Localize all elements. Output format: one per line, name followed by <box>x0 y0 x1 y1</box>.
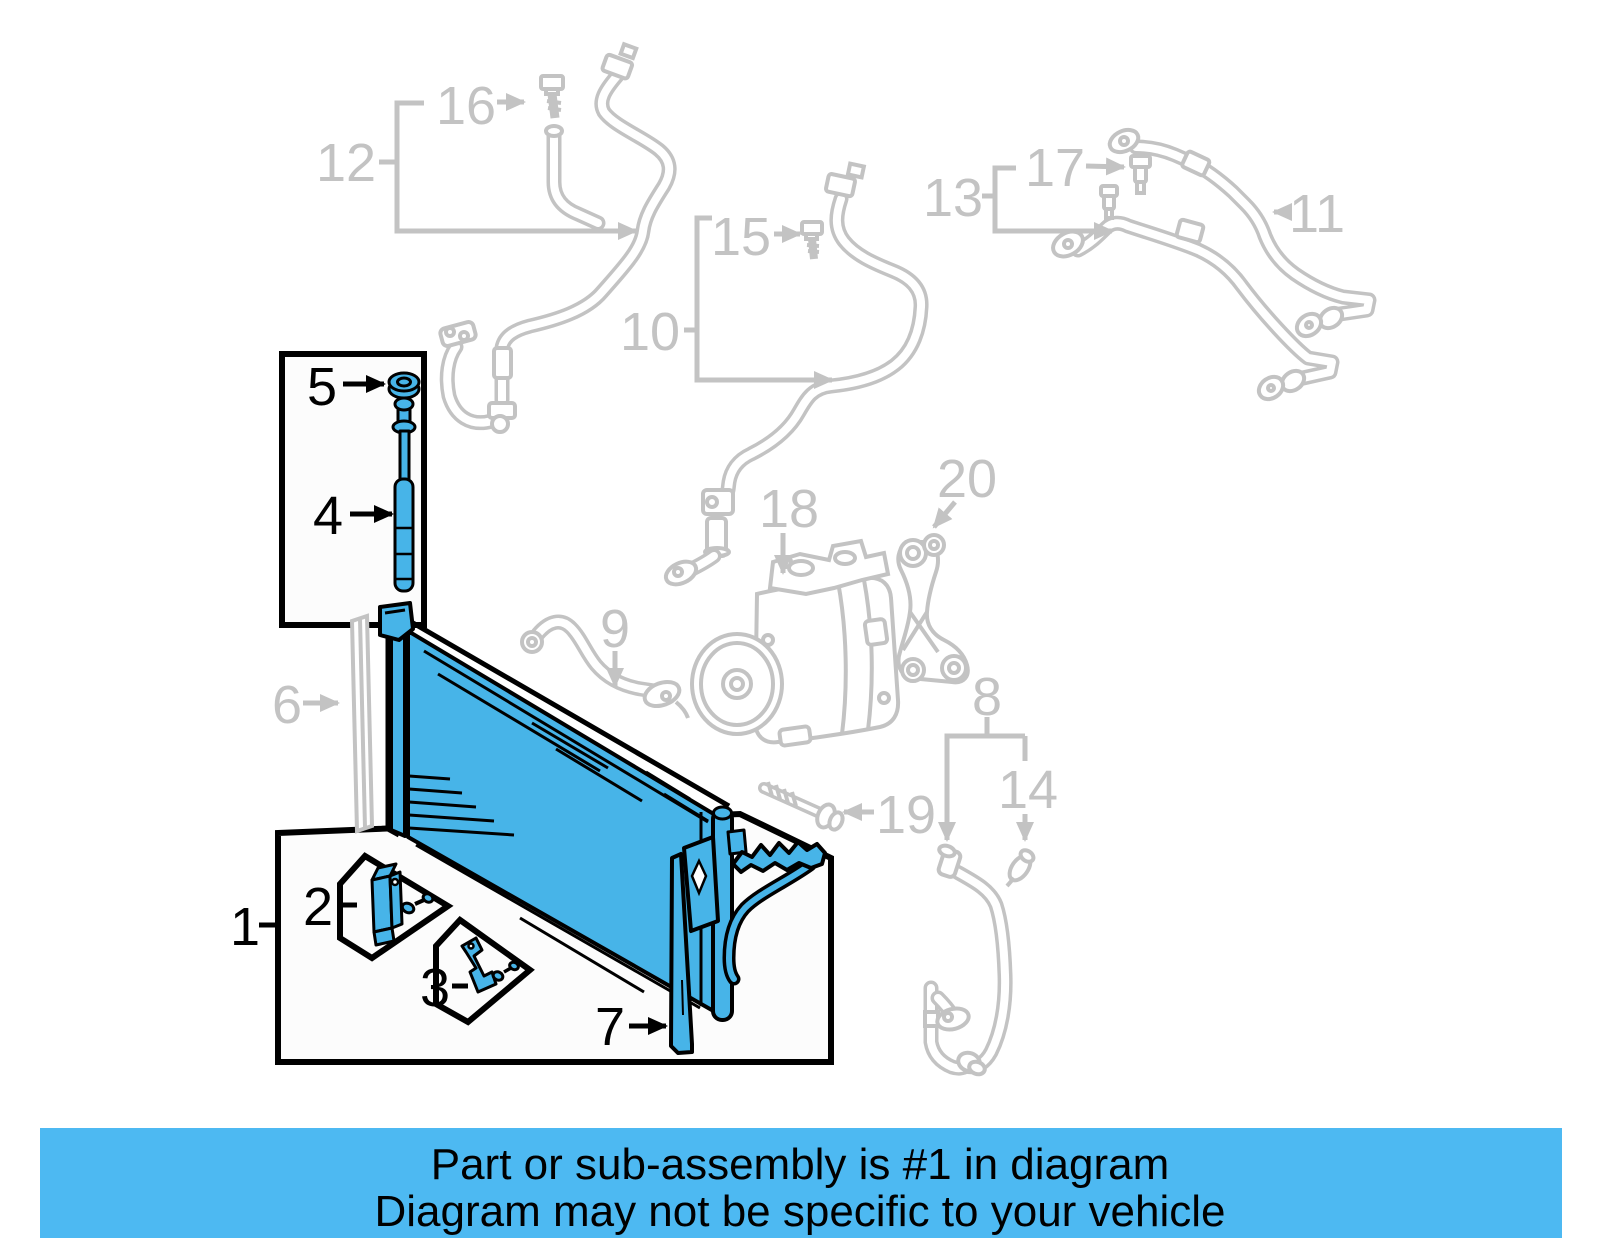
callout-8[interactable]: 8 <box>972 667 1002 727</box>
bolt-15 <box>802 222 822 259</box>
callout-18[interactable]: 18 <box>759 479 819 539</box>
bolt-19 <box>764 782 845 832</box>
callout-6[interactable]: 6 <box>272 675 302 735</box>
ac-line-13 <box>1049 219 1332 403</box>
callout-2[interactable]: 2 <box>303 877 333 937</box>
seal-strip-6 <box>352 616 372 831</box>
callout-11[interactable]: 11 <box>1289 184 1345 244</box>
service-valve-14 <box>1005 848 1035 886</box>
leader-12 <box>379 103 636 231</box>
callout-13[interactable]: 13 <box>923 168 983 228</box>
callout-10[interactable]: 10 <box>620 302 680 362</box>
callout-16[interactable]: 16 <box>436 76 496 136</box>
callout-17[interactable]: 17 <box>1025 138 1085 198</box>
banner-line2: Diagram may not be specific to your vehi… <box>374 1187 1225 1236</box>
callout-5[interactable]: 5 <box>307 357 337 417</box>
drier-bracket-plate <box>684 837 718 931</box>
condenser-inlet-tab <box>380 603 413 640</box>
callout-9[interactable]: 9 <box>600 599 630 659</box>
callout-19[interactable]: 19 <box>876 785 936 845</box>
callout-1[interactable]: 1 <box>230 897 260 957</box>
callout-7[interactable]: 7 <box>595 997 625 1057</box>
bolt-16 <box>541 76 563 118</box>
mount-bracket-20 <box>898 535 967 682</box>
desiccant-cartridge-4 <box>393 398 415 591</box>
callout-20[interactable]: 20 <box>937 449 997 509</box>
callout-3[interactable]: 3 <box>420 958 450 1018</box>
callout-15[interactable]: 15 <box>711 207 771 267</box>
leader-17 <box>1086 166 1124 167</box>
callout-4[interactable]: 4 <box>313 486 343 546</box>
banner-line1: Part or sub-assembly is #1 in diagram <box>431 1140 1170 1189</box>
callout-12[interactable]: 12 <box>316 133 376 193</box>
suction-hose-8 <box>925 844 1005 1077</box>
callout-14[interactable]: 14 <box>998 760 1058 820</box>
compressor-18 <box>692 541 898 746</box>
condenser-side-channel <box>391 623 405 836</box>
cap-grommet-5 <box>389 373 419 398</box>
info-banner: Part or sub-assembly is #1 in diagram Di… <box>40 1128 1562 1238</box>
parts-diagram-page: 1 2 3 4 5 6 7 8 9 10 11 12 13 14 15 16 1… <box>0 0 1600 1249</box>
parts-diagram-canvas: 1 2 3 4 5 6 7 8 9 10 11 12 13 14 15 16 1… <box>0 0 1600 1249</box>
